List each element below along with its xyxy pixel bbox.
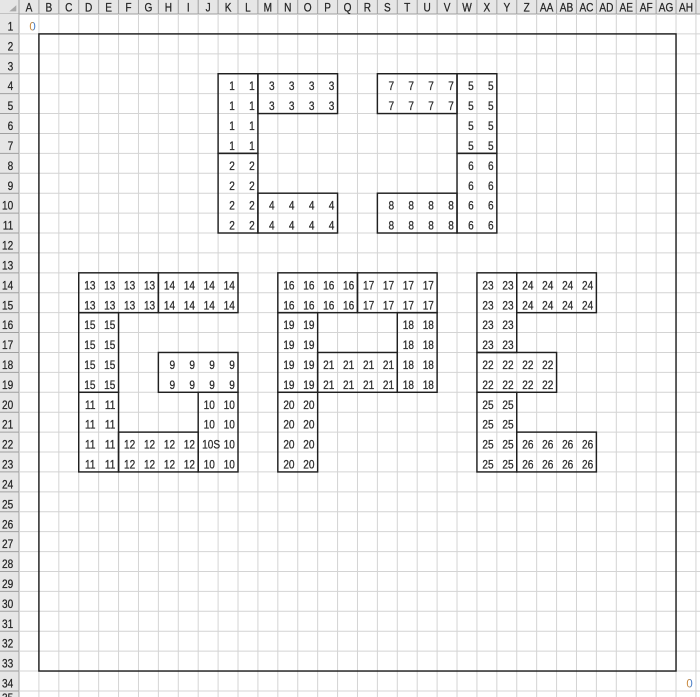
svg-text:9: 9	[8, 180, 14, 193]
svg-text:3: 3	[289, 100, 295, 113]
svg-text:AF: AF	[640, 2, 653, 15]
svg-text:21: 21	[323, 379, 334, 392]
svg-text:2: 2	[249, 180, 255, 193]
svg-text:22: 22	[522, 359, 533, 372]
svg-text:9: 9	[229, 359, 235, 372]
svg-text:E: E	[105, 2, 112, 15]
svg-text:22: 22	[522, 379, 533, 392]
svg-text:10: 10	[204, 419, 215, 432]
svg-text:13: 13	[104, 300, 115, 313]
svg-text:3: 3	[329, 100, 335, 113]
svg-text:12: 12	[184, 459, 195, 472]
svg-text:19: 19	[303, 379, 314, 392]
svg-text:19: 19	[283, 379, 294, 392]
svg-text:9: 9	[209, 359, 215, 372]
svg-text:26: 26	[542, 459, 553, 472]
svg-text:20: 20	[303, 419, 314, 432]
svg-text:11: 11	[85, 439, 95, 452]
svg-text:12: 12	[144, 459, 155, 472]
svg-text:U: U	[424, 2, 431, 15]
svg-text:20: 20	[283, 459, 294, 472]
svg-text:20: 20	[303, 399, 314, 412]
svg-text:20: 20	[283, 439, 294, 452]
svg-text:19: 19	[303, 319, 314, 332]
svg-text:18: 18	[423, 359, 434, 372]
svg-text:10: 10	[224, 399, 235, 412]
svg-text:13: 13	[124, 280, 135, 293]
svg-text:18: 18	[403, 339, 414, 352]
svg-text:10: 10	[2, 200, 13, 213]
svg-text:12: 12	[124, 439, 135, 452]
svg-text:20: 20	[2, 399, 13, 412]
svg-text:J: J	[206, 2, 211, 15]
svg-text:AH: AH	[679, 2, 693, 15]
svg-text:3: 3	[329, 80, 335, 93]
svg-text:12: 12	[2, 240, 13, 253]
svg-text:4: 4	[329, 220, 335, 233]
svg-text:7: 7	[8, 140, 14, 153]
svg-text:13: 13	[84, 300, 95, 313]
svg-text:17: 17	[383, 280, 394, 293]
svg-text:7: 7	[428, 80, 434, 93]
svg-text:12: 12	[144, 439, 155, 452]
svg-text:23: 23	[502, 339, 513, 352]
svg-text:8: 8	[388, 220, 394, 233]
svg-text:12: 12	[164, 439, 175, 452]
svg-text:22: 22	[542, 379, 553, 392]
svg-text:3: 3	[309, 100, 315, 113]
svg-text:4: 4	[329, 200, 335, 213]
svg-text:5: 5	[468, 100, 474, 113]
svg-text:13: 13	[2, 260, 13, 273]
svg-text:22: 22	[502, 359, 513, 372]
svg-text:11: 11	[85, 399, 95, 412]
svg-text:19: 19	[283, 319, 294, 332]
svg-text:0: 0	[29, 20, 36, 33]
svg-text:26: 26	[582, 439, 593, 452]
svg-text:4: 4	[309, 200, 315, 213]
svg-text:H: H	[165, 2, 172, 15]
svg-text:13: 13	[144, 280, 155, 293]
svg-text:4: 4	[289, 200, 295, 213]
svg-text:AD: AD	[599, 2, 613, 15]
svg-text:10S: 10S	[202, 439, 220, 452]
svg-text:5: 5	[468, 140, 474, 153]
svg-text:20: 20	[303, 439, 314, 452]
svg-text:14: 14	[164, 300, 175, 313]
svg-text:15: 15	[84, 319, 95, 332]
svg-text:22: 22	[542, 359, 553, 372]
svg-text:24: 24	[522, 300, 533, 313]
svg-text:22: 22	[482, 379, 493, 392]
svg-text:14: 14	[224, 280, 235, 293]
svg-text:27: 27	[2, 538, 13, 551]
svg-text:5: 5	[8, 100, 14, 113]
svg-text:AE: AE	[620, 2, 633, 15]
svg-text:15: 15	[104, 319, 115, 332]
svg-text:2: 2	[249, 160, 255, 173]
svg-text:9: 9	[169, 359, 175, 372]
svg-text:19: 19	[283, 359, 294, 372]
svg-text:18: 18	[423, 339, 434, 352]
svg-text:6: 6	[468, 220, 474, 233]
svg-text:14: 14	[184, 300, 195, 313]
svg-text:8: 8	[448, 220, 454, 233]
svg-text:5: 5	[488, 140, 494, 153]
svg-text:25: 25	[502, 399, 513, 412]
svg-text:24: 24	[582, 300, 593, 313]
svg-text:21: 21	[343, 359, 354, 372]
svg-text:21: 21	[323, 359, 334, 372]
svg-text:F: F	[125, 2, 131, 15]
svg-text:21: 21	[383, 359, 394, 372]
svg-text:13: 13	[124, 300, 135, 313]
svg-text:2: 2	[249, 200, 255, 213]
svg-text:23: 23	[482, 319, 493, 332]
svg-text:21: 21	[363, 379, 374, 392]
svg-text:10: 10	[204, 459, 215, 472]
svg-text:17: 17	[403, 300, 414, 313]
svg-text:K: K	[225, 2, 232, 15]
svg-text:16: 16	[323, 280, 334, 293]
svg-text:33: 33	[2, 658, 13, 671]
svg-text:T: T	[404, 2, 410, 15]
svg-text:7: 7	[408, 80, 414, 93]
svg-text:13: 13	[144, 300, 155, 313]
svg-text:1: 1	[229, 80, 235, 93]
svg-text:18: 18	[2, 359, 13, 372]
svg-text:9: 9	[169, 379, 175, 392]
svg-text:23: 23	[482, 280, 493, 293]
svg-text:2: 2	[249, 220, 255, 233]
svg-text:AA: AA	[540, 2, 554, 15]
svg-text:26: 26	[562, 439, 573, 452]
svg-text:I: I	[187, 2, 190, 15]
svg-text:D: D	[85, 2, 92, 15]
svg-text:5: 5	[468, 120, 474, 133]
svg-text:23: 23	[2, 459, 13, 472]
svg-text:3: 3	[289, 80, 295, 93]
svg-text:14: 14	[2, 280, 13, 293]
svg-text:26: 26	[522, 439, 533, 452]
svg-text:14: 14	[204, 300, 215, 313]
svg-text:L: L	[245, 2, 251, 15]
svg-text:9: 9	[209, 379, 215, 392]
svg-text:6: 6	[488, 160, 494, 173]
svg-text:14: 14	[164, 280, 175, 293]
svg-text:16: 16	[323, 300, 334, 313]
svg-text:22: 22	[502, 379, 513, 392]
svg-text:18: 18	[403, 319, 414, 332]
svg-text:1: 1	[229, 100, 235, 113]
svg-text:32: 32	[2, 638, 13, 651]
svg-text:4: 4	[8, 80, 14, 93]
svg-text:23: 23	[502, 300, 513, 313]
svg-text:2: 2	[229, 220, 235, 233]
svg-text:3: 3	[8, 61, 14, 74]
svg-text:25: 25	[502, 419, 513, 432]
svg-text:1: 1	[229, 140, 235, 153]
svg-text:7: 7	[448, 100, 454, 113]
svg-text:15: 15	[104, 379, 115, 392]
svg-text:26: 26	[542, 439, 553, 452]
svg-text:8: 8	[388, 200, 394, 213]
svg-text:25: 25	[2, 499, 13, 512]
svg-text:N: N	[284, 2, 291, 15]
svg-text:X: X	[484, 2, 491, 15]
svg-text:1: 1	[8, 21, 14, 34]
svg-text:18: 18	[423, 319, 434, 332]
svg-text:11: 11	[105, 399, 115, 412]
svg-text:21: 21	[343, 379, 354, 392]
svg-text:8: 8	[408, 200, 414, 213]
svg-text:11: 11	[85, 459, 95, 472]
svg-text:29: 29	[2, 578, 13, 591]
svg-text:0: 0	[686, 677, 693, 690]
svg-text:6: 6	[468, 200, 474, 213]
svg-text:11: 11	[105, 459, 115, 472]
svg-text:7: 7	[448, 80, 454, 93]
svg-text:7: 7	[408, 100, 414, 113]
svg-text:AG: AG	[659, 2, 674, 15]
svg-text:6: 6	[488, 200, 494, 213]
svg-text:25: 25	[482, 419, 493, 432]
svg-text:AC: AC	[579, 2, 593, 15]
svg-text:10: 10	[224, 459, 235, 472]
svg-text:15: 15	[2, 300, 13, 313]
svg-text:16: 16	[343, 280, 354, 293]
svg-text:15: 15	[84, 379, 95, 392]
svg-text:17: 17	[383, 300, 394, 313]
svg-text:17: 17	[423, 280, 434, 293]
svg-text:1: 1	[249, 100, 255, 113]
svg-text:1: 1	[229, 120, 235, 133]
svg-text:12: 12	[164, 459, 175, 472]
svg-text:14: 14	[184, 280, 195, 293]
svg-text:11: 11	[105, 419, 115, 432]
svg-text:14: 14	[224, 300, 235, 313]
svg-text:Q: Q	[344, 2, 352, 15]
svg-text:20: 20	[303, 459, 314, 472]
svg-text:6: 6	[468, 180, 474, 193]
svg-text:3: 3	[269, 100, 275, 113]
svg-text:4: 4	[289, 220, 295, 233]
svg-text:6: 6	[8, 120, 14, 133]
svg-text:28: 28	[2, 558, 13, 571]
svg-text:24: 24	[522, 280, 533, 293]
svg-text:14: 14	[204, 280, 215, 293]
svg-text:24: 24	[562, 300, 573, 313]
svg-text:1: 1	[249, 80, 255, 93]
svg-text:12: 12	[184, 439, 195, 452]
svg-text:4: 4	[269, 220, 275, 233]
svg-text:19: 19	[303, 339, 314, 352]
svg-text:31: 31	[2, 618, 13, 631]
svg-text:35: 35	[2, 692, 13, 697]
svg-text:15: 15	[84, 339, 95, 352]
svg-text:10: 10	[224, 439, 235, 452]
svg-text:13: 13	[84, 280, 95, 293]
svg-text:17: 17	[363, 280, 374, 293]
svg-text:23: 23	[482, 339, 493, 352]
svg-text:Z: Z	[524, 2, 530, 15]
svg-text:21: 21	[383, 379, 394, 392]
svg-text:18: 18	[403, 379, 414, 392]
svg-text:B: B	[45, 2, 52, 15]
svg-text:20: 20	[283, 399, 294, 412]
svg-text:16: 16	[303, 280, 314, 293]
svg-text:24: 24	[2, 479, 13, 492]
svg-text:9: 9	[229, 379, 235, 392]
svg-text:1: 1	[249, 120, 255, 133]
svg-text:22: 22	[482, 359, 493, 372]
svg-text:R: R	[364, 2, 371, 15]
svg-text:34: 34	[2, 678, 13, 691]
svg-text:10: 10	[204, 399, 215, 412]
svg-text:G: G	[144, 2, 152, 15]
svg-text:16: 16	[2, 319, 13, 332]
svg-text:19: 19	[2, 379, 13, 392]
svg-text:19: 19	[303, 359, 314, 372]
svg-text:P: P	[324, 2, 331, 15]
svg-text:A: A	[26, 2, 33, 15]
svg-text:2: 2	[229, 180, 235, 193]
svg-text:2: 2	[229, 160, 235, 173]
svg-text:6: 6	[488, 220, 494, 233]
svg-text:23: 23	[502, 280, 513, 293]
svg-text:11: 11	[85, 419, 95, 432]
svg-text:17: 17	[363, 300, 374, 313]
svg-text:5: 5	[488, 120, 494, 133]
svg-text:3: 3	[309, 80, 315, 93]
svg-text:26: 26	[2, 519, 13, 532]
svg-text:23: 23	[482, 300, 493, 313]
svg-text:23: 23	[502, 319, 513, 332]
svg-text:18: 18	[423, 379, 434, 392]
svg-text:17: 17	[403, 280, 414, 293]
svg-text:16: 16	[343, 300, 354, 313]
svg-text:26: 26	[562, 459, 573, 472]
svg-text:Y: Y	[503, 2, 510, 15]
svg-text:16: 16	[283, 280, 294, 293]
svg-text:18: 18	[403, 359, 414, 372]
svg-text:12: 12	[124, 459, 135, 472]
svg-text:30: 30	[2, 598, 13, 611]
svg-text:7: 7	[388, 80, 394, 93]
svg-text:25: 25	[482, 439, 493, 452]
svg-text:8: 8	[428, 200, 434, 213]
svg-text:4: 4	[309, 220, 315, 233]
svg-text:2: 2	[229, 200, 235, 213]
svg-text:1: 1	[249, 140, 255, 153]
svg-text:3: 3	[269, 80, 275, 93]
svg-text:9: 9	[189, 379, 195, 392]
svg-text:17: 17	[423, 300, 434, 313]
svg-text:13: 13	[104, 280, 115, 293]
svg-text:9: 9	[189, 359, 195, 372]
svg-text:25: 25	[482, 459, 493, 472]
svg-text:19: 19	[283, 339, 294, 352]
svg-text:26: 26	[522, 459, 533, 472]
svg-text:24: 24	[542, 300, 553, 313]
svg-text:21: 21	[363, 359, 374, 372]
svg-text:6: 6	[488, 180, 494, 193]
svg-text:M: M	[264, 2, 272, 15]
svg-text:11: 11	[3, 220, 13, 233]
svg-text:16: 16	[303, 300, 314, 313]
svg-text:O: O	[304, 2, 312, 15]
svg-text:5: 5	[488, 80, 494, 93]
svg-text:V: V	[444, 2, 451, 15]
svg-text:7: 7	[388, 100, 394, 113]
svg-text:17: 17	[2, 339, 13, 352]
svg-text:15: 15	[104, 339, 115, 352]
svg-text:4: 4	[269, 200, 275, 213]
svg-text:20: 20	[283, 419, 294, 432]
svg-text:25: 25	[502, 459, 513, 472]
svg-text:C: C	[65, 2, 72, 15]
svg-text:6: 6	[468, 160, 474, 173]
svg-text:5: 5	[468, 80, 474, 93]
svg-text:2: 2	[8, 41, 14, 54]
svg-text:8: 8	[448, 200, 454, 213]
svg-text:25: 25	[502, 439, 513, 452]
svg-text:8: 8	[8, 160, 14, 173]
svg-text:24: 24	[582, 280, 593, 293]
svg-text:7: 7	[428, 100, 434, 113]
svg-text:22: 22	[2, 439, 13, 452]
svg-text:15: 15	[104, 359, 115, 372]
svg-text:25: 25	[482, 399, 493, 412]
svg-text:W: W	[462, 2, 472, 15]
svg-text:10: 10	[224, 419, 235, 432]
svg-text:26: 26	[582, 459, 593, 472]
svg-text:AB: AB	[560, 2, 573, 15]
svg-text:5: 5	[488, 100, 494, 113]
svg-text:24: 24	[542, 280, 553, 293]
svg-text:8: 8	[408, 220, 414, 233]
svg-text:11: 11	[105, 439, 115, 452]
svg-text:8: 8	[428, 220, 434, 233]
svg-text:S: S	[384, 2, 391, 15]
svg-text:16: 16	[283, 300, 294, 313]
svg-text:21: 21	[2, 419, 13, 432]
svg-text:15: 15	[84, 359, 95, 372]
svg-text:24: 24	[562, 280, 573, 293]
